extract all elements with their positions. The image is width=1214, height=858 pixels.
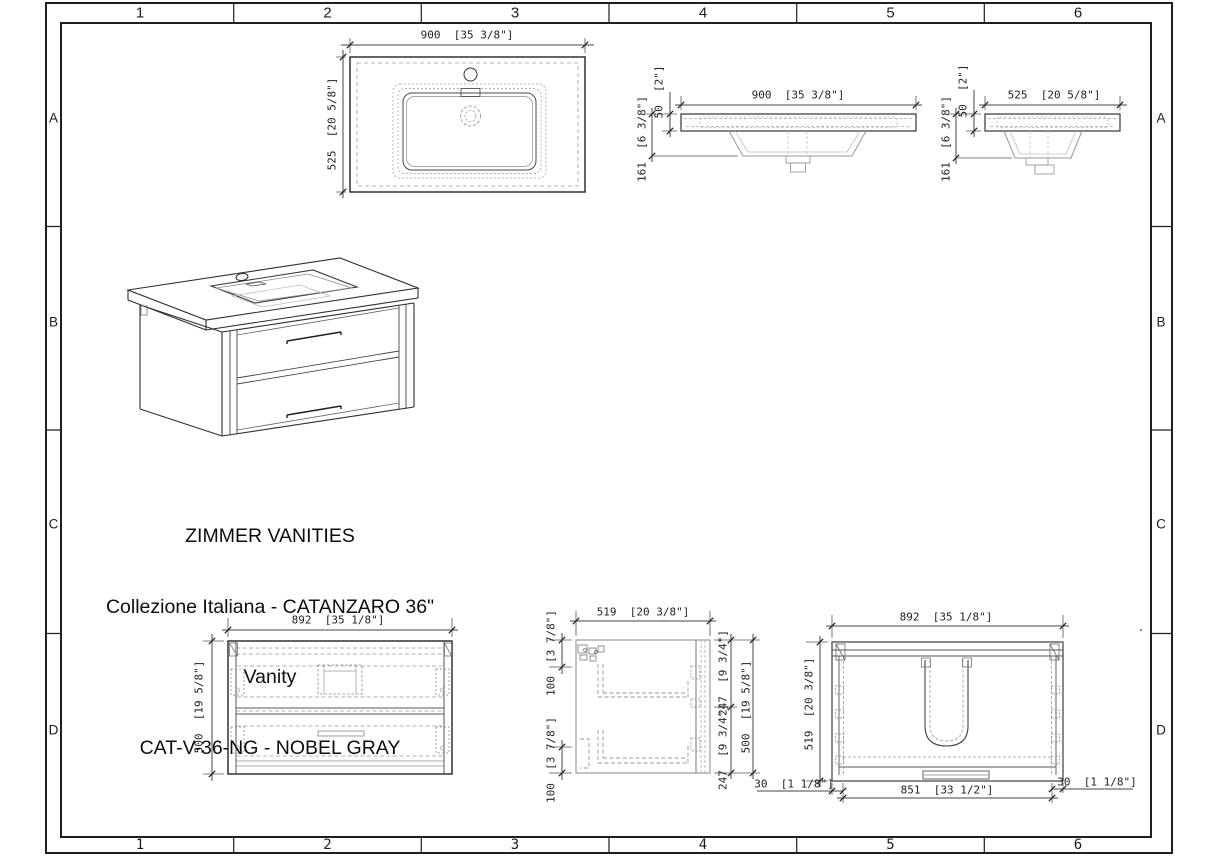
zone-label-left-C: C [49,517,59,532]
dim-sink-side-rim: 50 [2"] [957,65,970,118]
zone-label-right-B: B [1156,315,1165,330]
basin-opening [211,270,357,303]
mount-hardware [578,645,604,661]
drain-hidden [461,106,481,126]
drawer-handle [287,332,341,418]
title-line-sku: CAT-V-36-NG - NOBEL GRAY [106,737,434,761]
zone-label-bottom-1: 1 [136,837,144,853]
sink-top-view [336,38,594,198]
zone-label-top-6: 6 [1074,5,1082,22]
dim-sink-front-width: 900 [35 3/8"] [752,89,845,102]
dim-cab-top-inner-width: 851 [33 1/2"] [901,784,994,797]
zone-label-bottom-2: 2 [323,837,331,853]
zone-label-left-A: A [49,111,58,126]
zone-label-top-5: 5 [886,5,894,22]
sink-side-view [950,90,1127,174]
dim-sink-front-depth: 161 [6 3/8"] [636,96,649,182]
plumbing-cutout [925,660,968,746]
drawer-boxes-hidden [580,664,688,768]
dim-cab-top-depth: 519 [20 3/8"] [803,658,816,751]
dim-sink-top-width: 900 [35 3/8"] [421,29,514,42]
zone-label-right-A: A [1156,111,1165,126]
dim-cab-top-width: 892 [35 1/8"] [900,611,993,624]
zone-label-top-2: 2 [323,5,331,22]
zone-label-top-3: 3 [511,5,519,22]
title-line-brand: ZIMMER VANITIES [106,525,434,549]
drain-body [786,156,810,163]
zone-label-bottom-4: 4 [699,837,707,853]
faucet-hole [464,68,477,81]
dim-cab-top-left-gap: 30 [1 1/8"] [754,778,833,791]
drawing-sheet: 1 2 3 4 5 6 1 2 3 4 5 6 A B C D A B C D … [0,0,1214,858]
zone-label-bottom-6: 6 [1074,837,1082,853]
dim-cab-side-top-gap: 100 [3 7/8"] [545,610,558,696]
zone-label-left-B: B [49,315,58,330]
title-line-collection: Collezione Italiana - CATANZARO 36" [106,596,434,620]
vanity-isometric-view [128,258,418,436]
zone-label-right-C: C [1156,517,1166,532]
zone-label-top-1: 1 [136,5,144,22]
dim-cab-side-bottom-gap: 100 [3 7/8"] [545,717,558,803]
corner-hardware [836,644,1059,660]
title-line-type: Vanity [106,666,434,690]
dim-sink-top-depth: 525 [20 5/8"] [326,78,339,171]
zone-label-bottom-5: 5 [886,837,894,853]
dim-sink-front-rim: 50 [2"] [653,66,666,119]
zone-label-right-D: D [1156,723,1166,738]
drain-body [1026,158,1048,165]
slide-hardware [836,686,1060,764]
zone-label-bottom-3: 3 [511,837,519,853]
dim-cab-side-lower: 247 [9 3/4"] [717,704,730,790]
title-block: ZIMMER VANITIES Collezione Italiana - CA… [106,478,434,784]
dim-cab-side-height: 500 [19 5/8"] [740,661,753,754]
dim-cab-side-depth: 519 [20 3/8"] [597,606,690,619]
dim-cab-top-right-gap: 30 [1 1/8"] [1057,776,1136,789]
dim-sink-side-depth: 161 [6 3/8"] [940,96,953,182]
dim-sink-side-width: 525 [20 5/8"] [1008,89,1101,102]
sink-front-view [646,92,922,172]
zone-label-left-D: D [49,723,59,738]
zone-label-top-4: 4 [699,5,707,22]
